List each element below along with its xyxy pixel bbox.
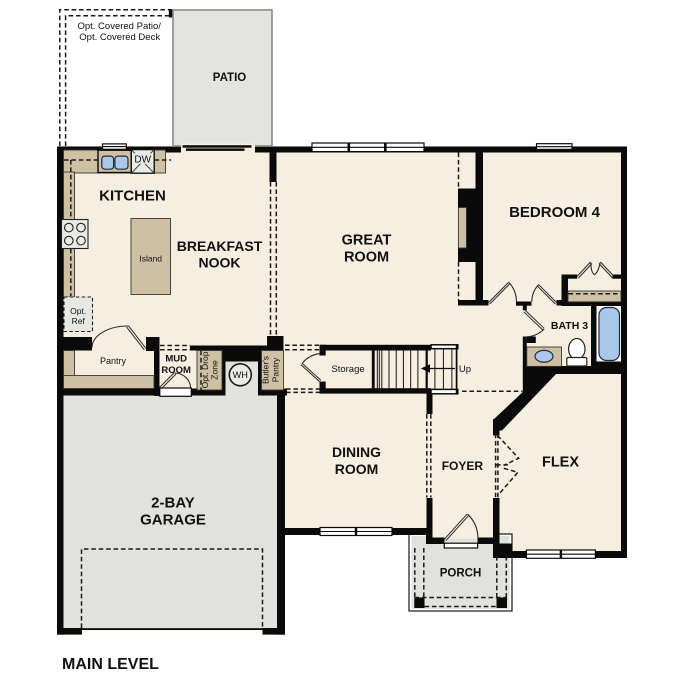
svg-text:BATH 3: BATH 3 <box>551 320 588 332</box>
svg-text:ROOM: ROOM <box>161 365 191 376</box>
svg-text:Opt. Covered Patio/: Opt. Covered Patio/ <box>77 21 161 32</box>
svg-text:Zone: Zone <box>210 360 220 380</box>
svg-text:Island: Island <box>139 254 162 264</box>
svg-text:Butler's: Butler's <box>260 356 270 384</box>
svg-text:Pantry: Pantry <box>270 357 280 382</box>
svg-text:Opt. Drop: Opt. Drop <box>200 351 210 388</box>
svg-text:Up: Up <box>459 364 471 375</box>
svg-text:PATIO: PATIO <box>213 72 246 84</box>
svg-text:ROOM: ROOM <box>344 250 389 266</box>
svg-text:GARAGE: GARAGE <box>140 511 206 528</box>
svg-text:MUD: MUD <box>165 354 187 365</box>
svg-text:PORCH: PORCH <box>440 567 482 579</box>
svg-text:Storage: Storage <box>331 364 364 375</box>
svg-text:NOOK: NOOK <box>199 255 241 271</box>
svg-text:GREAT: GREAT <box>342 232 392 248</box>
svg-text:Opt. Covered Deck: Opt. Covered Deck <box>79 32 160 43</box>
svg-text:BEDROOM 4: BEDROOM 4 <box>509 204 601 221</box>
svg-text:KITCHEN: KITCHEN <box>99 187 166 204</box>
svg-text:2-BAY: 2-BAY <box>151 494 195 511</box>
svg-text:DINING: DINING <box>332 444 381 460</box>
svg-text:Pantry: Pantry <box>100 356 127 366</box>
svg-text:Opt.: Opt. <box>70 306 86 316</box>
svg-text:FLEX: FLEX <box>542 455 579 471</box>
svg-text:Ref: Ref <box>72 316 86 326</box>
svg-text:MAIN LEVEL: MAIN LEVEL <box>62 656 159 673</box>
svg-text:FOYER: FOYER <box>442 459 484 473</box>
svg-text:DW: DW <box>134 155 151 166</box>
svg-text:WH: WH <box>233 370 248 380</box>
svg-text:ROOM: ROOM <box>335 461 379 477</box>
svg-text:BREAKFAST: BREAKFAST <box>177 238 263 254</box>
